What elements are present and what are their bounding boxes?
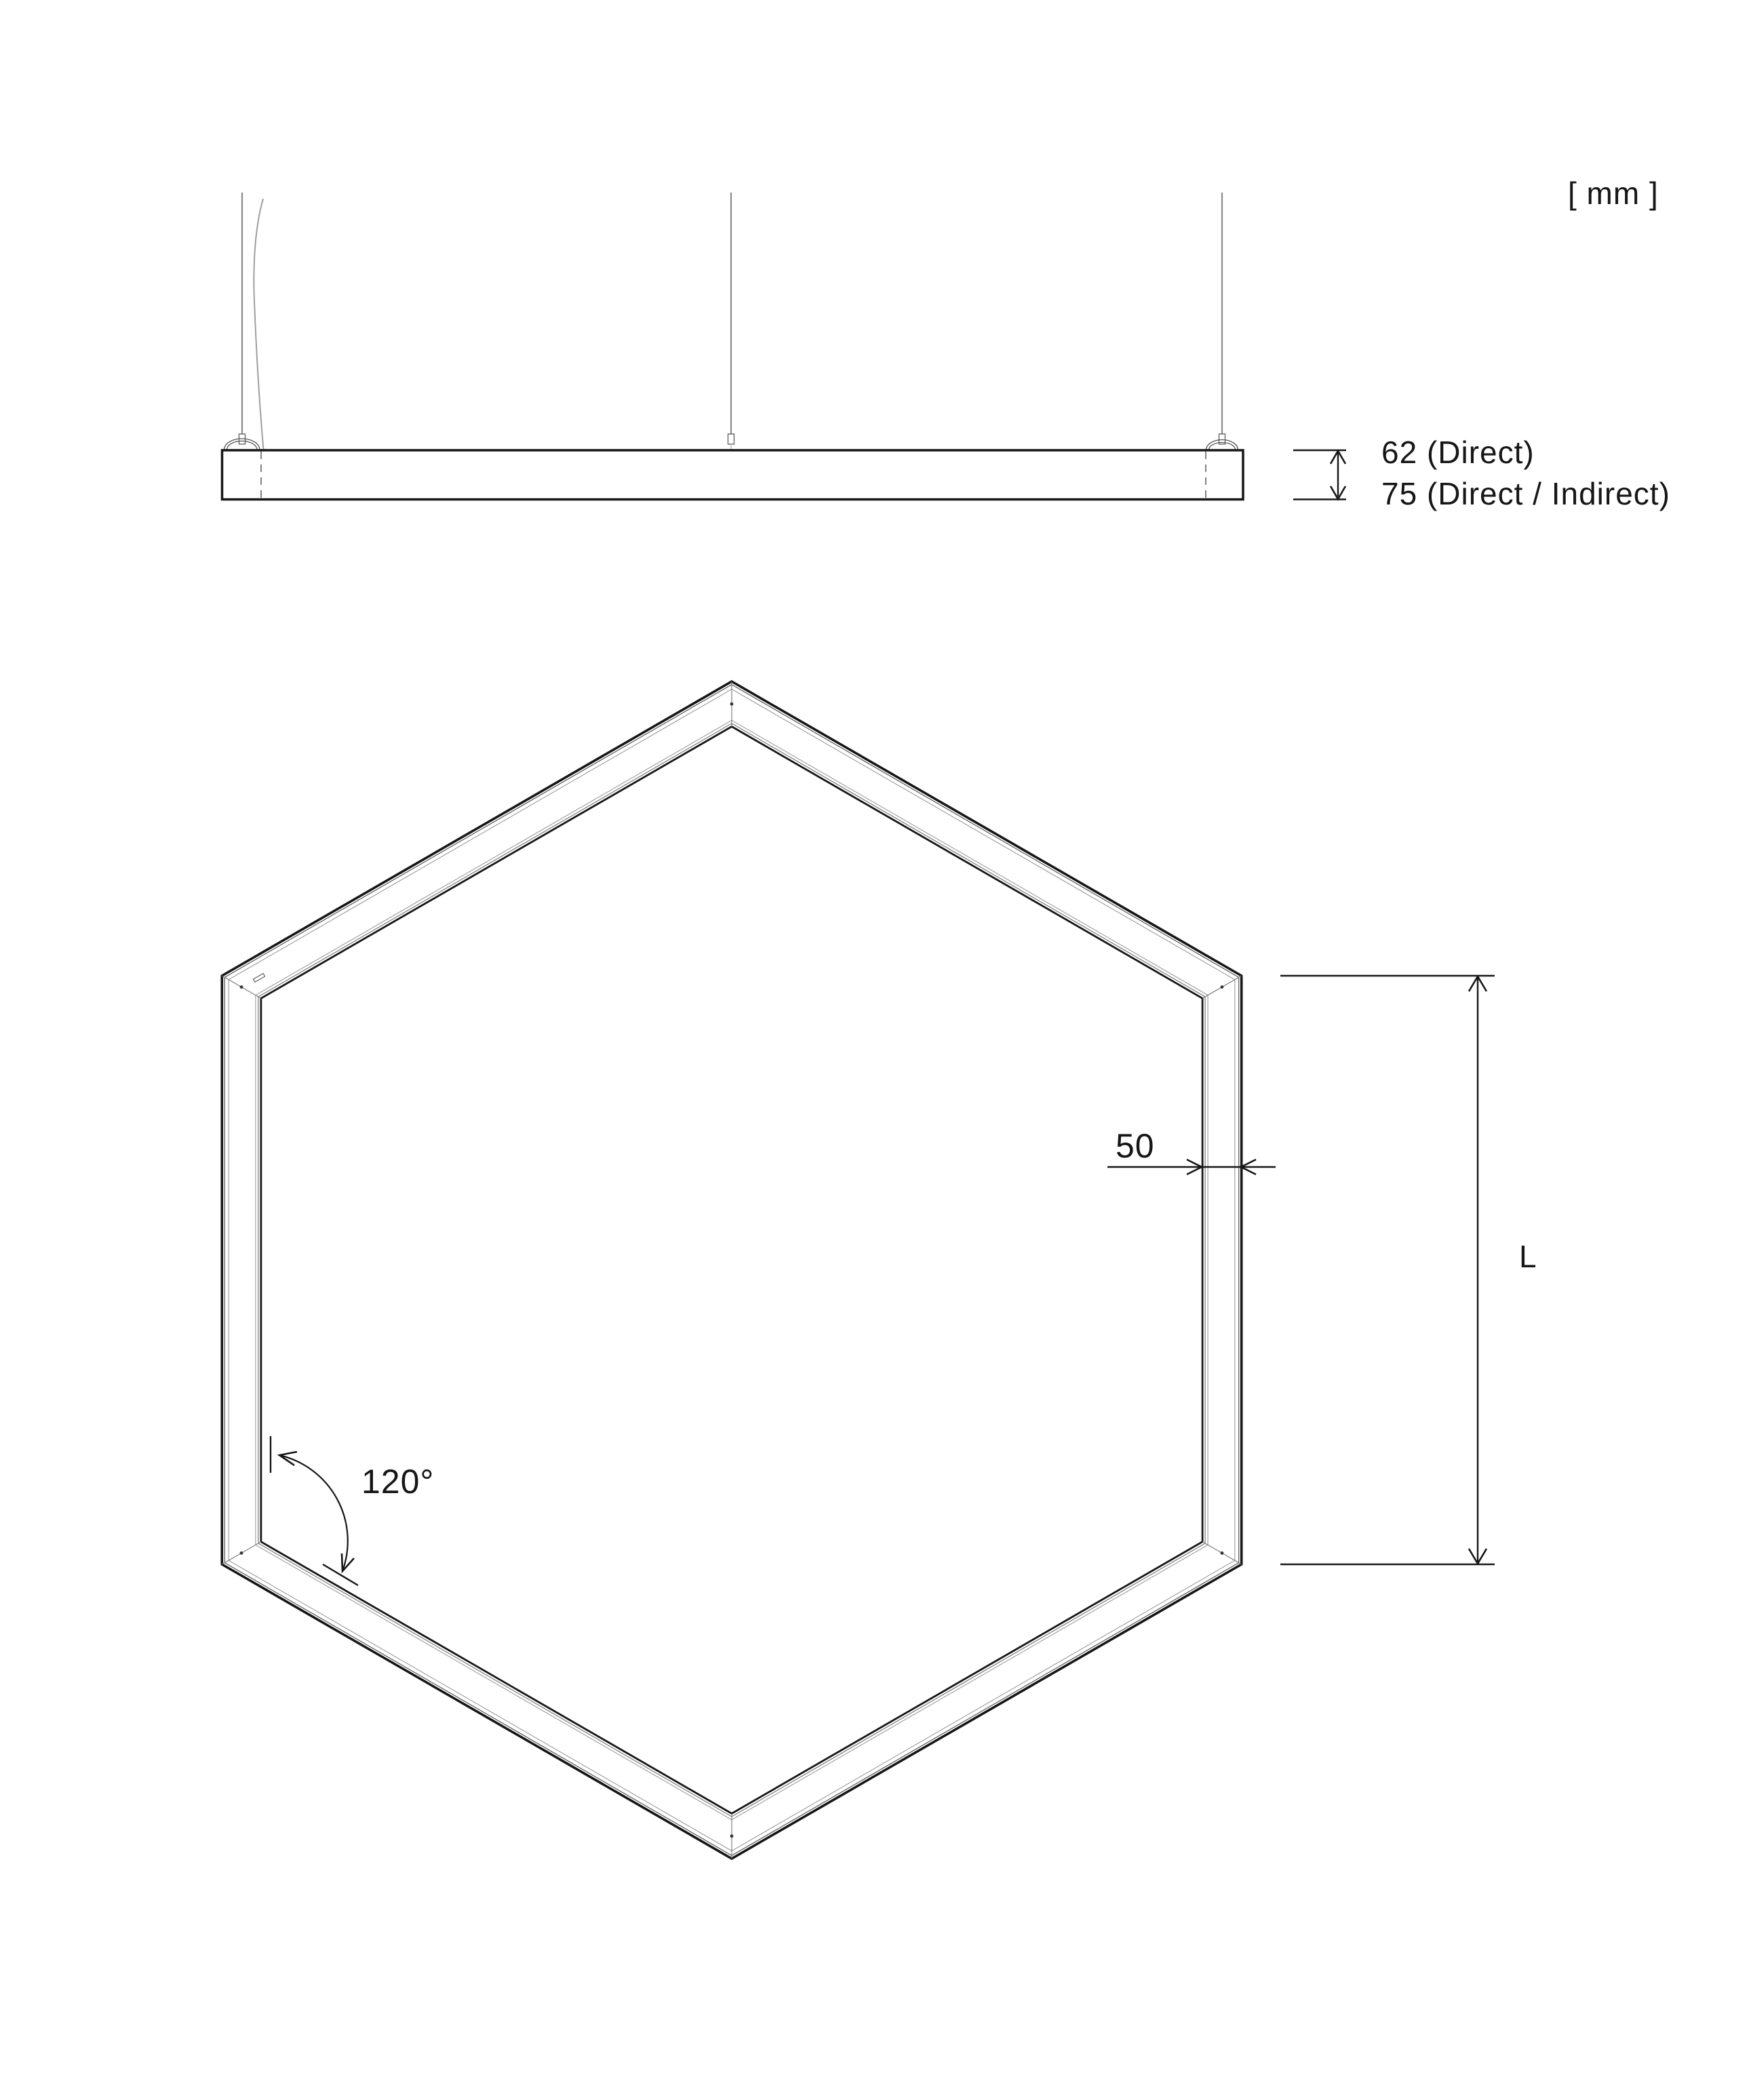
profile-width-label: 50 — [1116, 1127, 1155, 1165]
hexagon-frame — [222, 681, 1241, 1859]
hexagon-plan-view: 50 L 120° — [222, 681, 1537, 1859]
corner-angle-label: 120° — [361, 1463, 434, 1501]
profile-width-dimension: 50 — [1107, 1127, 1276, 1174]
housing-bar — [222, 450, 1244, 500]
hexagon-profile-ring-3 — [256, 720, 1208, 1819]
hexagon-corner-joint-dot-1 — [1221, 985, 1224, 989]
corner-angle-dimension: 120° — [271, 1436, 434, 1585]
hexagon-profile-ring-5 — [261, 727, 1202, 1814]
hexagon-corner-joint-dot-3 — [730, 1834, 734, 1838]
height-direct-indirect-label: 75 (Direct / Indirect) — [1381, 476, 1670, 511]
angle-arc-arrow-top — [279, 1452, 297, 1465]
hexagon-corner-joint-dot-2 — [1221, 1551, 1224, 1555]
hexagon-corner-joint-dot-0 — [730, 702, 734, 706]
corner-detail-mark — [253, 974, 264, 983]
side-length-label: L — [1519, 1239, 1537, 1274]
cable-gripper-middle — [728, 434, 734, 444]
angle-ref-tick-diagonal — [323, 1564, 358, 1585]
side-length-dimension: L — [1280, 976, 1537, 1564]
hexagon-profile-ring-0 — [222, 681, 1241, 1859]
angle-arc — [279, 1455, 348, 1571]
hexagon-corner-joint-dot-4 — [240, 1551, 243, 1555]
technical-drawing-page: 62 (Direct) 75 (Direct / Indirect) [ mm … — [0, 0, 1751, 2097]
drawing-svg: 62 (Direct) 75 (Direct / Indirect) [ mm … — [0, 0, 1751, 2097]
power-cord — [254, 199, 263, 450]
height-dimension: 62 (Direct) 75 (Direct / Indirect) — [1293, 435, 1670, 511]
unit-label: [ mm ] — [1568, 176, 1659, 211]
hexagon-profile-ring-4 — [258, 724, 1205, 1817]
hexagon-profile-ring-1 — [224, 685, 1238, 1856]
hexagon-corner-joint-dot-5 — [240, 985, 243, 989]
height-direct-label: 62 (Direct) — [1381, 435, 1535, 470]
side-elevation-view: 62 (Direct) 75 (Direct / Indirect) — [222, 193, 1670, 511]
hexagon-profile-ring-2 — [229, 689, 1235, 1850]
